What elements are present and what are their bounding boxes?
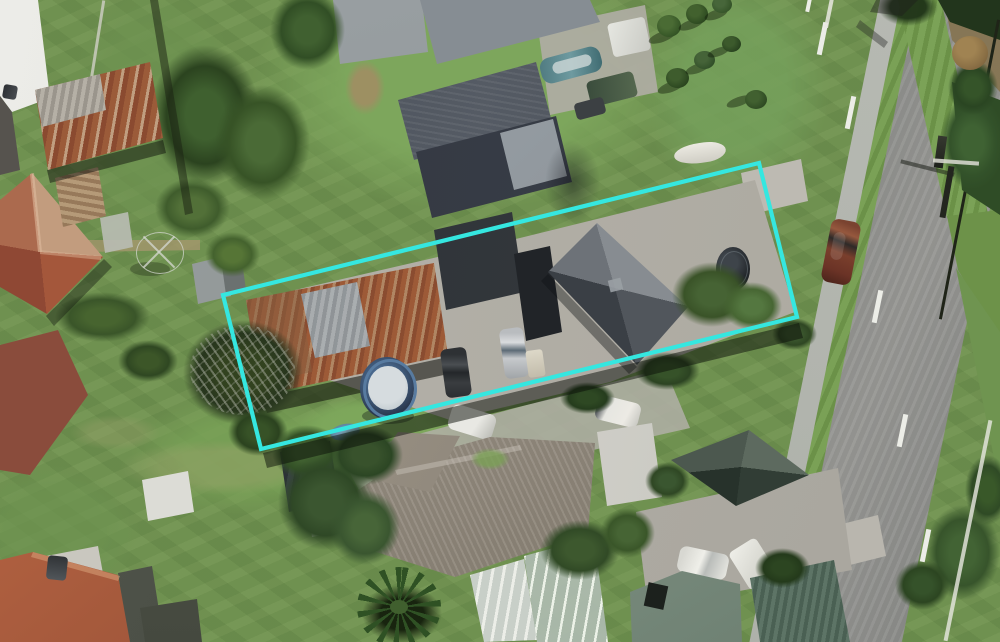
tree-top-left-2 (215, 85, 310, 200)
aerial-stage[interactable] (0, 0, 1000, 642)
potted-shrub-6 (722, 36, 741, 52)
potted-shrub-2 (686, 4, 708, 24)
pool-water-cover (368, 366, 408, 410)
dark-car-bottom-left (46, 555, 68, 581)
hedge-left-2 (118, 340, 178, 382)
tree-mid-left-1 (155, 178, 230, 238)
hedge-bottom-right-dark (755, 548, 810, 588)
tree-bottom-center-5 (600, 508, 655, 558)
tree-canopy-road-bottom (895, 560, 950, 610)
parked-car-top-left (2, 84, 18, 100)
tan-deck-top (345, 60, 385, 115)
tree-mid-left-2 (205, 232, 260, 277)
storage-bins (525, 349, 546, 378)
potted-shrub-7 (745, 90, 767, 109)
potted-shrub-1 (657, 15, 681, 37)
worn-dirt-path-2 (70, 415, 160, 450)
dark-house-side-shadow (545, 140, 600, 225)
hedge-inside-right-2 (722, 282, 782, 330)
palm-tree-crown (390, 600, 408, 614)
tree-bottom-center-2 (330, 490, 400, 565)
grass-tuft-center (470, 448, 510, 470)
shrub-brown-top-right (952, 36, 988, 70)
hedge-left-of-teal-house (645, 462, 690, 500)
bare-tree-branches (190, 325, 295, 415)
